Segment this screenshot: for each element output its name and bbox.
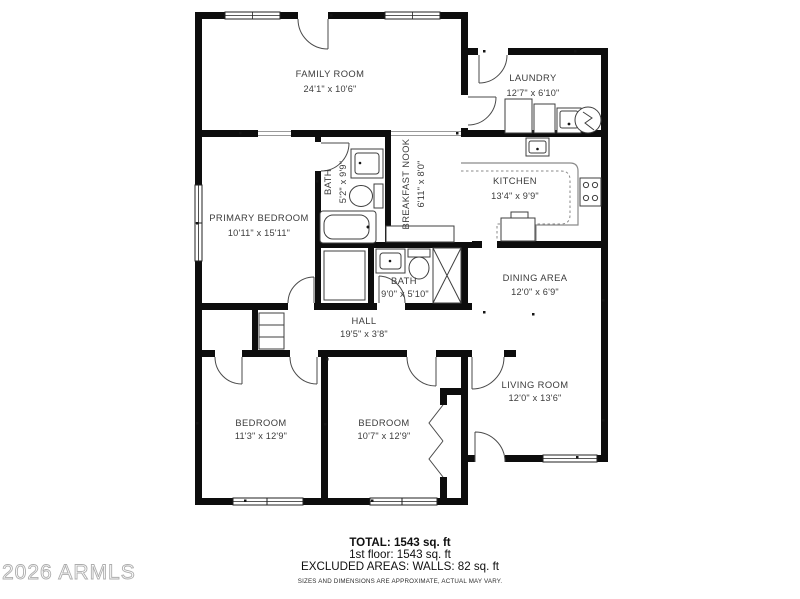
- room-label-bedroom-left: BEDROOM: [235, 417, 286, 428]
- room-label-primary-bedroom: PRIMARY BEDROOM: [209, 212, 308, 223]
- footer-disclaimer: SIZES AND DIMENSIONS ARE APPROXIMATE, AC…: [298, 578, 503, 585]
- room-label-breakfast-nook: BREAKFAST NOOK: [400, 138, 411, 229]
- room-label-hall: HALL: [351, 315, 376, 326]
- wall-living-west: [461, 357, 468, 498]
- opening-laundry-left-door: [461, 95, 468, 128]
- opening-kitchen-dining: [482, 241, 497, 248]
- room-dims-dining-area: 12'0" x 6'9": [511, 287, 559, 297]
- floor-plan-svg: FAMILY ROOM 24'1" x 10'6" LAUNDRY 12'7" …: [0, 0, 800, 599]
- room-label-laundry: LAUNDRY: [509, 72, 557, 83]
- shower-icon: [433, 248, 461, 303]
- wall-kitchen-bottom-a: [472, 241, 482, 248]
- bath-upper-sink-icon: [351, 149, 383, 178]
- wall-bed2-closet-stub2: [440, 477, 447, 498]
- stove-icon: [580, 178, 601, 206]
- room-dims-bath-lower: 9'0" x 5'10": [381, 289, 429, 299]
- opening-entry-door: [475, 455, 505, 462]
- washer-icon: [575, 107, 601, 133]
- room-dims-family-room: 24'1" x 10'6": [304, 84, 357, 94]
- window-family-1: [225, 12, 280, 19]
- room-dims-bedroom-right: 10'7" x 12'9": [358, 431, 411, 441]
- wall-bed2-closet-stub1: [440, 395, 447, 405]
- armls-watermark: 2026 ARMLS: [2, 561, 136, 584]
- room-label-bedroom-right: BEDROOM: [358, 417, 409, 428]
- wall-shower-right: [461, 242, 468, 310]
- wall-exterior-right: [601, 48, 608, 462]
- opening-family-top-door: [298, 12, 328, 19]
- room-label-family-room: FAMILY ROOM: [296, 68, 365, 79]
- opening-bath-upper-door: [315, 142, 321, 171]
- wall-family-bottom: [195, 130, 391, 137]
- room-dims-breakfast-nook: 6'11" x 8'0": [416, 161, 426, 208]
- window-family-2: [385, 12, 440, 19]
- room-dims-primary-bedroom: 10'11" x 15'11": [228, 228, 290, 238]
- room-dims-bath-upper: 5'2" x 9'9": [338, 161, 348, 203]
- wall-bedroom-divider: [321, 357, 328, 498]
- laundry-cabinets: [505, 99, 555, 133]
- wall-hall-closet-stub: [252, 310, 258, 350]
- footer-excluded-areas: EXCLUDED AREAS: WALLS: 82 sq. ft: [301, 560, 500, 573]
- room-dims-kitchen: 13'4" x 9'9": [491, 191, 539, 201]
- room-label-bath-upper: BATH: [322, 169, 333, 195]
- room-dims-bedroom-left: 11'3" x 12'9": [235, 431, 287, 441]
- opening-primary-door: [288, 303, 314, 310]
- window-living-room: [543, 455, 597, 462]
- wall-hall-top: [195, 303, 472, 310]
- opening-bed2-door: [407, 350, 436, 357]
- toilet-icon: [350, 184, 384, 208]
- wall-bed2-closet-top: [440, 388, 468, 395]
- opening-bed1-door: [290, 350, 318, 357]
- wall-closet-right: [368, 248, 374, 310]
- page-background: [0, 0, 800, 599]
- room-label-kitchen: KITCHEN: [493, 175, 537, 186]
- wall-hall-bottom: [195, 350, 516, 357]
- wall-kitchen-bottom-b: [497, 241, 608, 248]
- opening-laundry-top-door: [478, 48, 508, 55]
- opening-bath-lower-door: [377, 303, 405, 310]
- room-dims-laundry: 12'7" x 6'10": [507, 88, 560, 98]
- opening-bed1-closet-door: [215, 350, 242, 357]
- room-label-dining-area: DINING AREA: [503, 272, 568, 283]
- window-bedroom-left: [233, 498, 303, 505]
- window-bedroom-right: [370, 498, 437, 505]
- opening-living-door: [472, 350, 504, 357]
- room-label-living-room: LIVING ROOM: [502, 379, 569, 390]
- bathtub-icon: [320, 211, 376, 243]
- bath-lower-sink-icon: [376, 249, 405, 273]
- kitchen-sink-icon: [526, 138, 549, 156]
- room-dims-living-room: 12'0" x 13'6": [509, 393, 562, 403]
- room-dims-hall: 19'5" x 3'8": [340, 329, 388, 339]
- room-label-bath-lower: BATH: [391, 275, 417, 286]
- nook-counter: [386, 226, 454, 242]
